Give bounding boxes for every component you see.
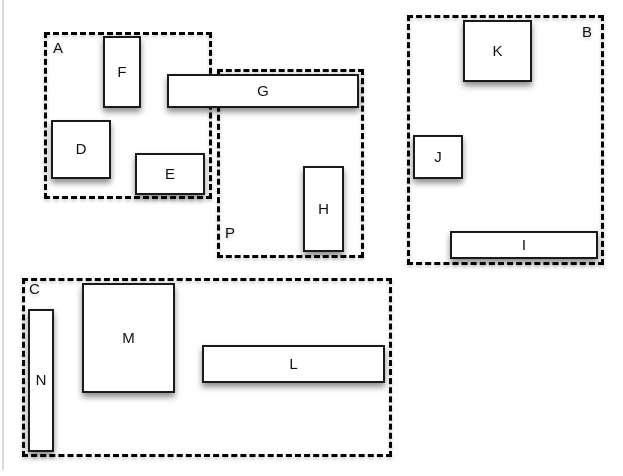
- box-m: M: [82, 283, 175, 393]
- window-left-edge-line: [2, 0, 4, 470]
- box-j: J: [413, 135, 463, 179]
- box-f: F: [103, 36, 141, 108]
- group-c-label: C: [29, 282, 40, 298]
- box-i: I: [450, 231, 598, 259]
- box-h: H: [303, 166, 344, 252]
- box-k: K: [463, 20, 532, 82]
- group-b-label: B: [582, 25, 592, 41]
- box-n: N: [28, 309, 54, 452]
- box-g: G: [167, 74, 359, 108]
- box-d: D: [51, 120, 111, 179]
- group-a-label: A: [53, 41, 63, 57]
- box-l: L: [202, 345, 385, 383]
- diagram-canvas: A P B C F D E G H K J I M L N: [0, 0, 623, 476]
- group-p-label: P: [225, 226, 235, 242]
- box-e: E: [135, 153, 205, 195]
